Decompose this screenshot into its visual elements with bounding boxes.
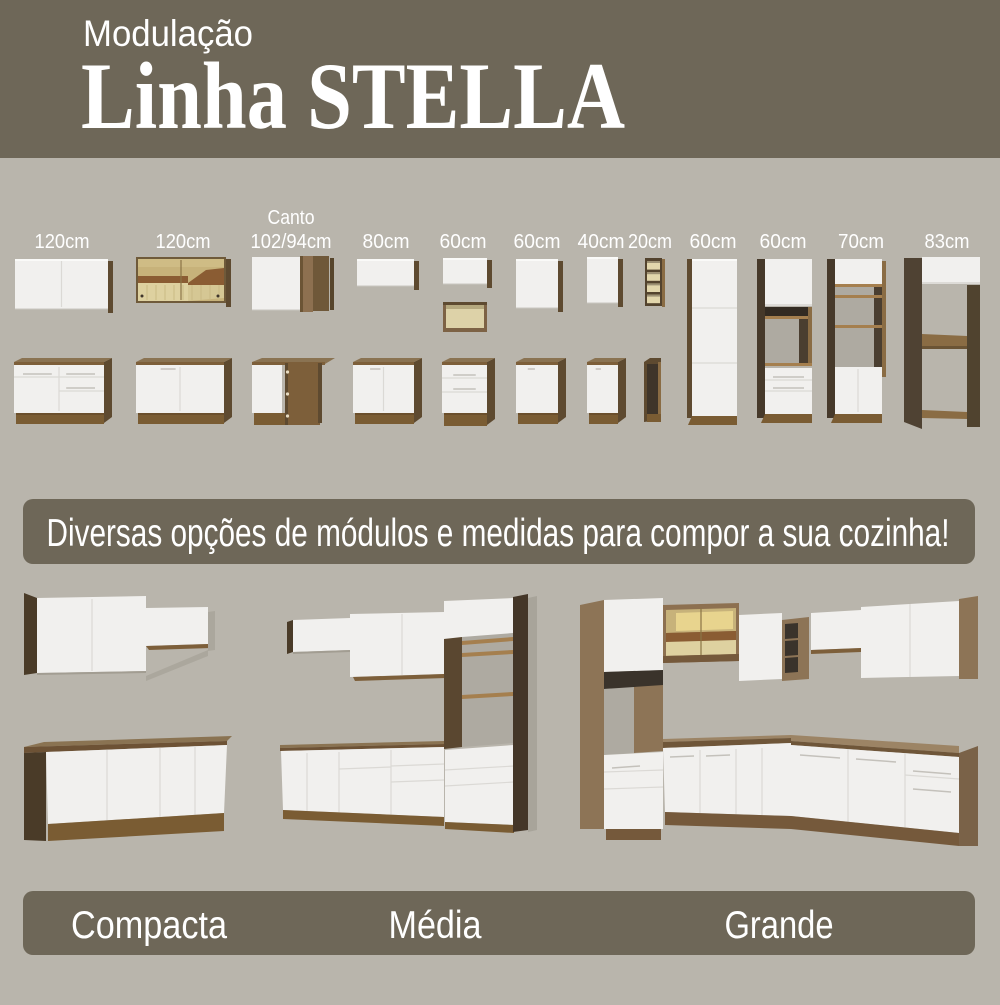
svg-text:Grande: Grande: [725, 904, 834, 947]
svg-text:83cm: 83cm: [925, 231, 970, 253]
svg-text:80cm: 80cm: [363, 231, 410, 253]
svg-text:70cm: 70cm: [838, 231, 884, 253]
svg-text:102/94cm: 102/94cm: [251, 231, 332, 253]
svg-text:60cm: 60cm: [514, 231, 561, 253]
svg-text:120cm: 120cm: [156, 231, 211, 253]
svg-text:60cm: 60cm: [440, 231, 487, 253]
svg-text:Diversas opções de módulos e m: Diversas opções de módulos e medidas par…: [47, 512, 950, 555]
svg-text:60cm: 60cm: [760, 231, 807, 253]
svg-text:120cm: 120cm: [35, 231, 90, 253]
svg-text:Linha STELLA: Linha STELLA: [81, 43, 625, 149]
svg-text:20cm: 20cm: [628, 231, 672, 253]
svg-text:Compacta: Compacta: [71, 904, 227, 947]
svg-text:60cm: 60cm: [690, 231, 737, 253]
svg-text:40cm: 40cm: [578, 231, 625, 253]
svg-text:Média: Média: [389, 904, 482, 947]
svg-text:Canto: Canto: [268, 207, 315, 229]
